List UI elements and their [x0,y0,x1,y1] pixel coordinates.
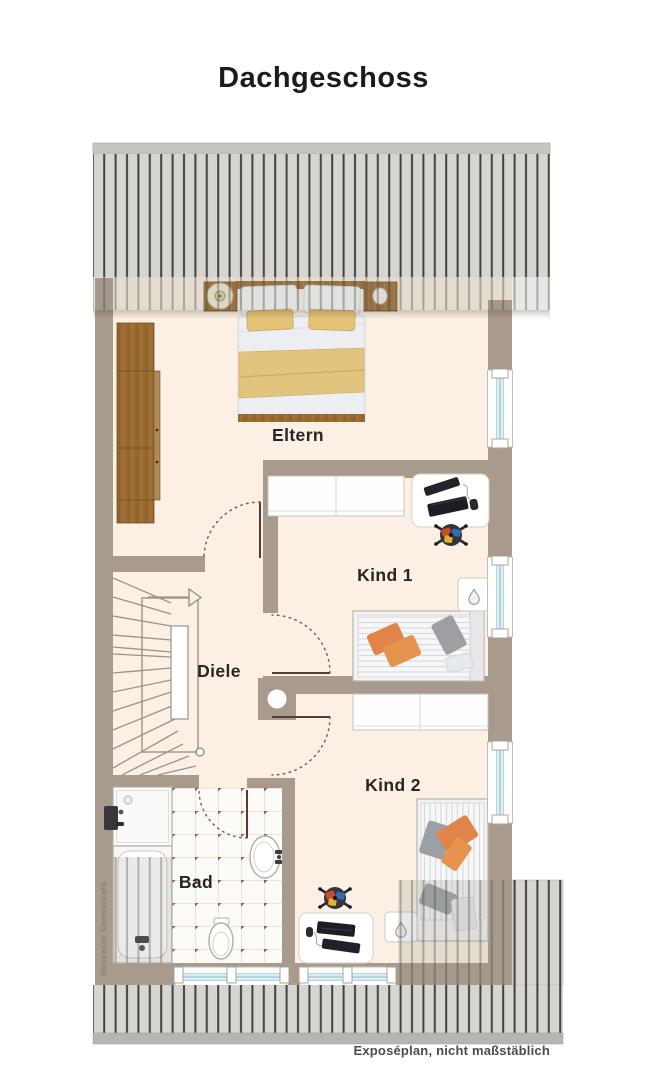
window-right-kind1 [488,556,513,638]
roof-overlap-top [93,277,550,319]
single-bed-icon [353,611,484,681]
label-eltern: Eltern [272,425,324,445]
roof-overlap-right [398,880,512,985]
roof-hatch-bottom [93,985,563,1044]
desk-icon [299,913,373,963]
footboard [238,414,365,422]
wardrobe-icon [117,323,160,523]
window-right-eltern [488,369,513,448]
wardrobe-icon [268,476,404,516]
roof-overlap-left [113,857,172,963]
wardrobe-icon [353,694,488,730]
window-right-kind2 [488,741,513,824]
label-bad: Bad [179,872,213,892]
roof-hatch-top [93,143,550,277]
label-kind1: Kind 1 [357,565,413,585]
footer-note: Exposéplan, nicht maßstäblich [353,1043,550,1058]
illustrator-watermark: Illustration ©ImmoGrafik [99,881,108,976]
small-cabinet-icon [458,578,490,611]
duct-circle [268,690,287,709]
wall-left [95,278,113,985]
wall-eltern-diele [95,556,205,572]
label-kind2: Kind 2 [365,775,421,795]
label-diele: Diele [197,661,241,681]
window-bottom-kind2 [299,967,396,987]
wall-bad-east [282,835,295,963]
window-bottom-bad [174,967,289,987]
mouse-icon [306,927,313,937]
stair-newel [196,748,204,756]
stair-handrail [171,626,188,719]
desk-icon [412,474,489,527]
floorplan-page: Dachgeschoss [0,0,647,1080]
roof-hatch-bottom-right [512,880,563,985]
floorplan-drawing: Eltern Kind 1 Kind 2 Diele Bad Illustrat… [0,0,647,1080]
shower [104,787,172,846]
